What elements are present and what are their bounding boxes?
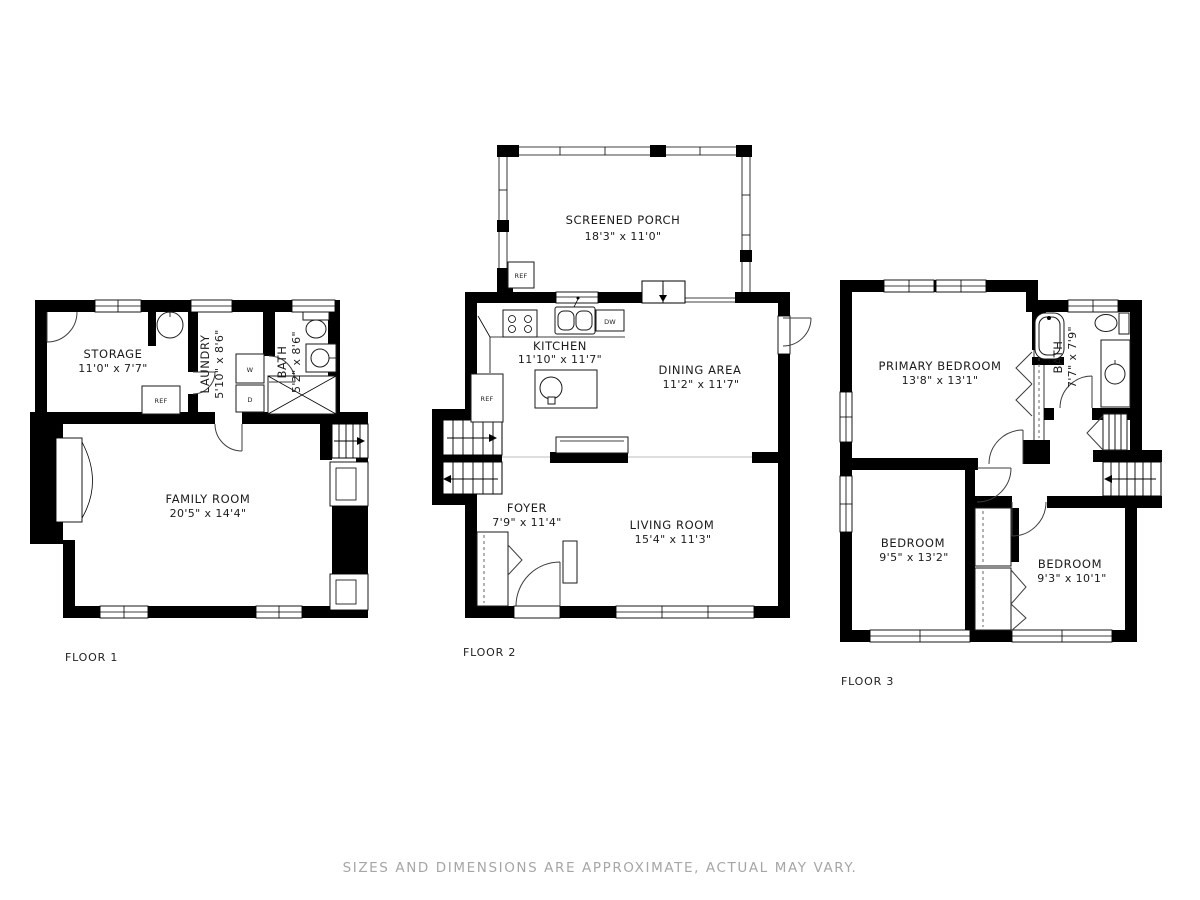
window [1068, 300, 1118, 312]
floor2-living-dims: 15'4" x 11'3" [635, 533, 712, 546]
foyer-closet [477, 532, 522, 606]
washer-label: W [247, 366, 254, 374]
floor3-primary-dims: 13'8" x 13'1" [902, 374, 979, 387]
window [95, 300, 141, 312]
floor2-label: FLOOR 2 [463, 646, 516, 659]
window [292, 300, 335, 312]
floor2-porch-name: SCREENED PORCH [566, 213, 681, 227]
primary-door-arc [989, 430, 1023, 464]
dishwasher-icon: DW [596, 310, 624, 331]
porch-ref-label: REF [515, 272, 528, 280]
dryer-label: D [247, 396, 252, 404]
floor1-family-name: FAMILY ROOM [166, 492, 251, 506]
floorplan-canvas: REF W D STORAGE 1 [0, 0, 1200, 900]
floor1-storage-name: STORAGE [84, 347, 143, 361]
floor3-bedroom2-name: BEDROOM [1038, 557, 1102, 571]
floor2-kitchen-dims: 11'10" x 11'7" [518, 353, 602, 366]
floor2-dining-name: DINING AREA [658, 363, 741, 377]
bathroom-sink-icon [306, 344, 336, 372]
dining-door-opening [778, 316, 790, 354]
refrigerator-icon: REF [142, 386, 180, 414]
stove-icon [503, 310, 537, 337]
floor3-bedroom1-name: BEDROOM [881, 536, 945, 550]
stairs-icon [332, 424, 368, 458]
floor3-label: FLOOR 3 [841, 675, 894, 688]
window-recess [330, 574, 368, 610]
utility-sink-icon [157, 312, 183, 338]
wall-stub [563, 541, 577, 583]
window [840, 392, 852, 442]
floor2-plan: REF [432, 145, 811, 659]
window [191, 300, 232, 312]
kitchen-island-icon [535, 370, 597, 408]
toilet-icon [303, 312, 329, 338]
floor1-storage-dims: 11'0" x 7'7" [78, 362, 147, 375]
staircase-icon [443, 420, 502, 494]
floor1-label: FLOOR 1 [65, 651, 118, 664]
floor3-bedroom1-dims: 9'5" x 13'2" [879, 551, 948, 564]
floor1-bath-dims: 5'2" x 8'6" [290, 331, 303, 393]
floor3-plan: PRIMARY BEDROOM 13'8" x 13'1" BATH 7'7" … [840, 280, 1162, 688]
primary-closet-doors [1016, 352, 1032, 416]
floor2-foyer-dims: 7'9" x 11'4" [492, 516, 561, 529]
front-door-arc [516, 562, 560, 606]
floor1-laundry-name: LAUNDRY [198, 334, 212, 393]
washer-icon: W [236, 354, 264, 383]
floor2-foyer-name: FOYER [507, 501, 547, 515]
window [616, 606, 754, 618]
floor1-bath-name: BATH [275, 346, 289, 379]
floor3-stairs-icon [1103, 462, 1161, 496]
toilet-icon [1095, 313, 1129, 334]
floor2-living-name: LIVING ROOM [630, 518, 715, 532]
window [936, 280, 986, 292]
ref-label: REF [155, 397, 168, 405]
window [884, 280, 934, 292]
window [870, 630, 970, 642]
floor2-kitchen-name: KITCHEN [533, 339, 587, 353]
window [100, 606, 148, 618]
floor1-plan: REF W D STORAGE 1 [30, 300, 368, 664]
window-recess [330, 462, 368, 506]
floor2-porch-dims: 18'3" x 11'0" [585, 230, 662, 243]
floorplan-page: REF W D STORAGE 1 [0, 0, 1200, 900]
sofa-icon [556, 437, 628, 453]
kitchen-ref-label: REF [481, 395, 494, 403]
window [840, 476, 852, 532]
floor1-laundry-dims: 5'10" x 8'6" [213, 329, 226, 398]
floor1-family-dims: 20'5" x 14'4" [170, 507, 247, 520]
porch-refrigerator-icon: REF [508, 262, 534, 288]
window [1012, 630, 1112, 642]
floor3-bath-name: BATH [1051, 341, 1065, 374]
window [256, 606, 302, 618]
dryer-icon: D [236, 385, 264, 412]
disclaimer-text: SIZES AND DIMENSIONS ARE APPROXIMATE, AC… [343, 860, 858, 876]
floor2-dining-dims: 11'2" x 11'7" [663, 378, 740, 391]
kitchen-refrigerator-icon: REF [471, 374, 503, 422]
vanity-sink-icon [1101, 340, 1130, 407]
floor3-bedroom2-dims: 9'3" x 10'1" [1037, 572, 1106, 585]
floor3-primary-name: PRIMARY BEDROOM [878, 359, 1001, 373]
dw-label: DW [604, 318, 616, 326]
porch-steps-icon [642, 281, 735, 303]
bow-window [56, 438, 93, 522]
floor2-windows [477, 292, 790, 618]
floor3-bath-dims: 7'7" x 7'9" [1066, 326, 1079, 388]
front-door-opening [514, 606, 560, 618]
